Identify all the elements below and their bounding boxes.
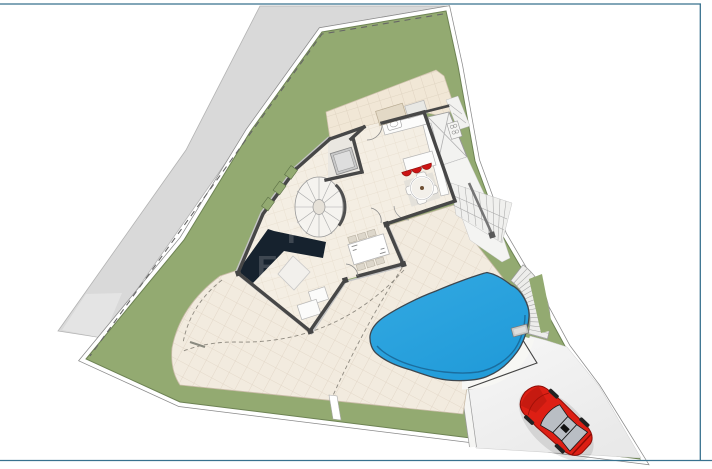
- svg-text:P: P: [287, 215, 308, 250]
- svg-text:E: E: [257, 249, 278, 284]
